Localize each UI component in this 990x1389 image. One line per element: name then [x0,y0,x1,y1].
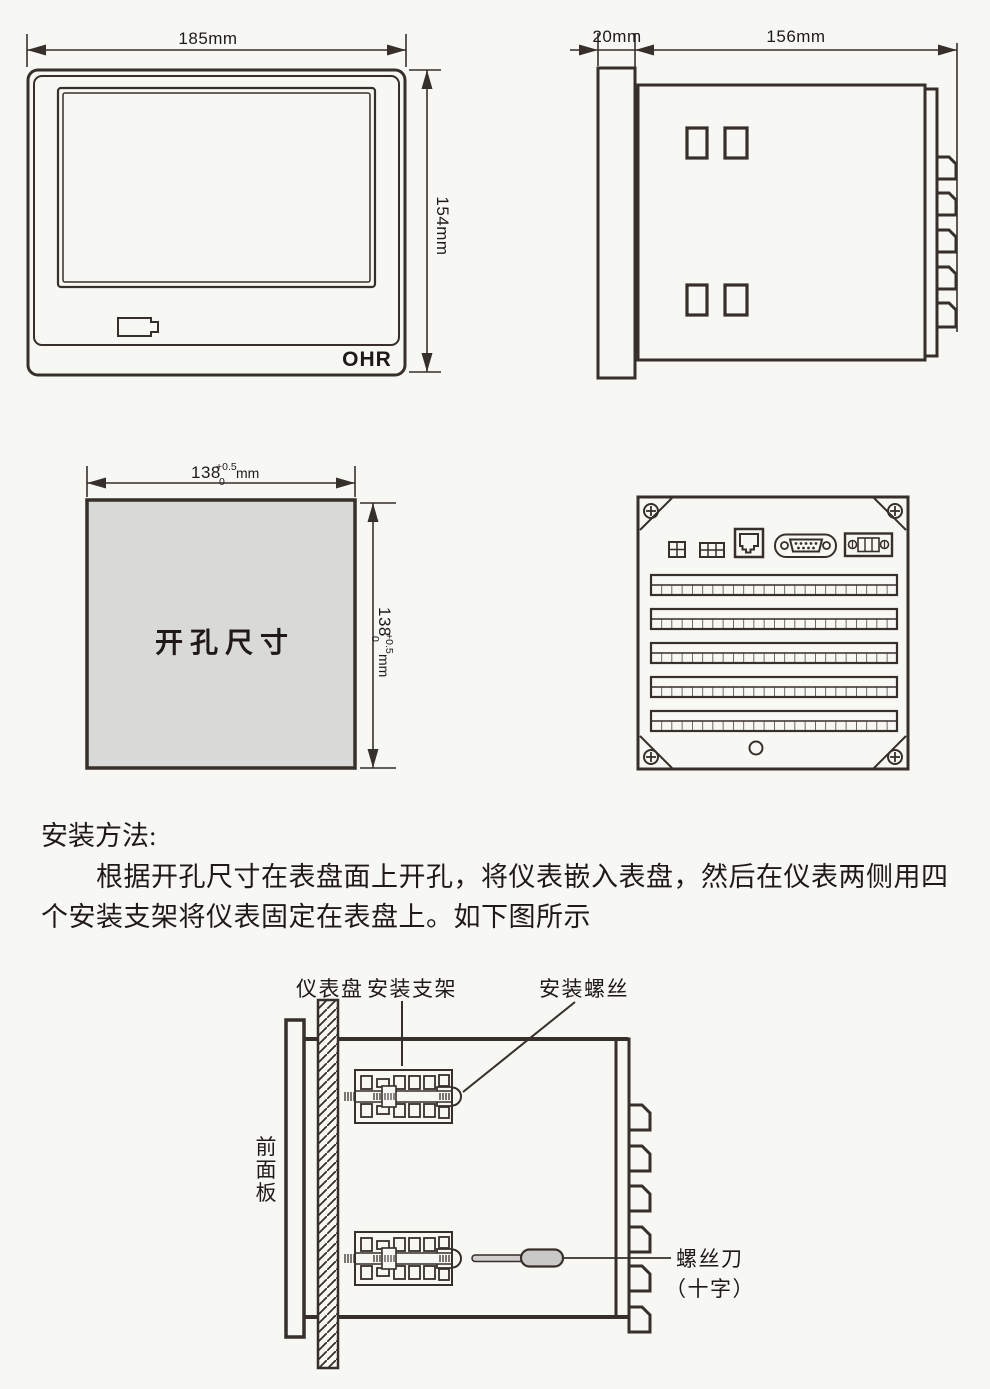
instructions-line2: 个安装支架将仪表固定在表盘上。如下图所示 [41,902,591,932]
arrowhead [579,45,598,56]
arrowhead [368,503,379,522]
svg-text:0: 0 [219,476,225,488]
terminal-strips [651,575,897,731]
front-width-dimension: 185mm [178,29,237,48]
svg-text:mm: mm [376,654,392,677]
bracket-label: 安装支架 [367,977,457,1001]
svg-text:+0.5: +0.5 [383,633,395,654]
mounting-bracket-top [345,1070,461,1123]
installation-instructions: 安装方法: 根据开孔尺寸在表盘面上开孔，将仪表嵌入表盘，然后在仪表两侧用四 个安… [41,821,949,932]
instructions-line1: 根据开孔尺寸在表盘面上开孔，将仪表嵌入表盘，然后在仪表两侧用四 [96,862,949,892]
arrowhead [635,45,654,56]
screwdriver-label: 螺丝刀 [676,1247,744,1271]
svg-text:+0.5: +0.5 [216,461,237,473]
svg-text:0: 0 [369,636,381,642]
side-view-diagram: 20mm 156mm [570,27,957,378]
manual-page: 185mm OHR 154mm 20mm 156mm [0,0,990,1389]
instrument-outer-bezel [28,70,405,375]
screw-head [452,1250,461,1268]
front-panel-plate [286,1020,304,1337]
mounting-bracket-bottom [345,1232,461,1285]
terminal-strip [651,711,897,731]
terminal-strip [651,677,897,697]
arrowhead [27,45,46,56]
arrowhead [87,478,106,489]
power-terminal [845,534,892,557]
serial-port-db9 [775,535,836,558]
arrowhead [387,45,406,56]
screwdriver [472,1250,563,1267]
side-front-bezel [598,68,635,378]
cutout-width-dimension: 138 +0.5 0 mm [191,461,259,488]
side-body [638,85,925,360]
arrowhead [336,478,355,489]
rear-small-connector [669,542,685,557]
screen-bezel [58,88,375,287]
usb-cover [118,318,158,336]
arrowhead [422,353,433,372]
ethernet-port [735,529,763,557]
mounting-panel-hatched [318,1000,338,1368]
cutout-label: 开孔尺寸 [155,627,295,659]
front-view-diagram: 185mm OHR 154mm [27,29,452,375]
body-terminal-bumps [629,1105,650,1332]
installation-diagram: 仪表盘 安装支架 安装螺丝 [286,977,755,1368]
side-vent-slots [687,128,747,315]
screw-head [452,1088,461,1106]
side-body-dimension: 156mm [766,27,825,46]
front-height-dimension: 154mm [433,196,452,255]
screwdriver-type-label: （十字） [665,1277,755,1301]
side-terminal-bumps [937,157,956,327]
rear-center-hole [750,742,763,755]
terminal-strip [651,575,897,595]
screw-label: 安装螺丝 [539,977,629,1001]
arrowhead [368,749,379,768]
arrowhead [938,45,957,56]
arrowhead [422,70,433,89]
rear-view-diagram [638,497,908,769]
svg-text:mm: mm [236,465,259,481]
instructions-heading: 安装方法: [41,821,157,851]
side-rear-plate [925,89,937,356]
panel-label: 仪表盘 [296,977,364,1001]
terminal-strip [651,609,897,629]
screen [63,93,370,282]
side-depth-dimension: 20mm [592,27,641,46]
technical-drawing: 185mm OHR 154mm 20mm 156mm [0,0,990,1389]
screw-leader-line [463,1002,575,1092]
body-rear-plate [616,1039,629,1317]
rear-medium-connector [700,543,724,557]
instrument-inner-bezel [34,76,399,345]
terminal-strip [651,643,897,663]
front-panel-label: 前面板 [253,1136,279,1205]
brand-logo: OHR [342,348,392,371]
cutout-diagram: 138 +0.5 0 mm 开孔尺寸 138 +0.5 0 mm [87,461,396,768]
